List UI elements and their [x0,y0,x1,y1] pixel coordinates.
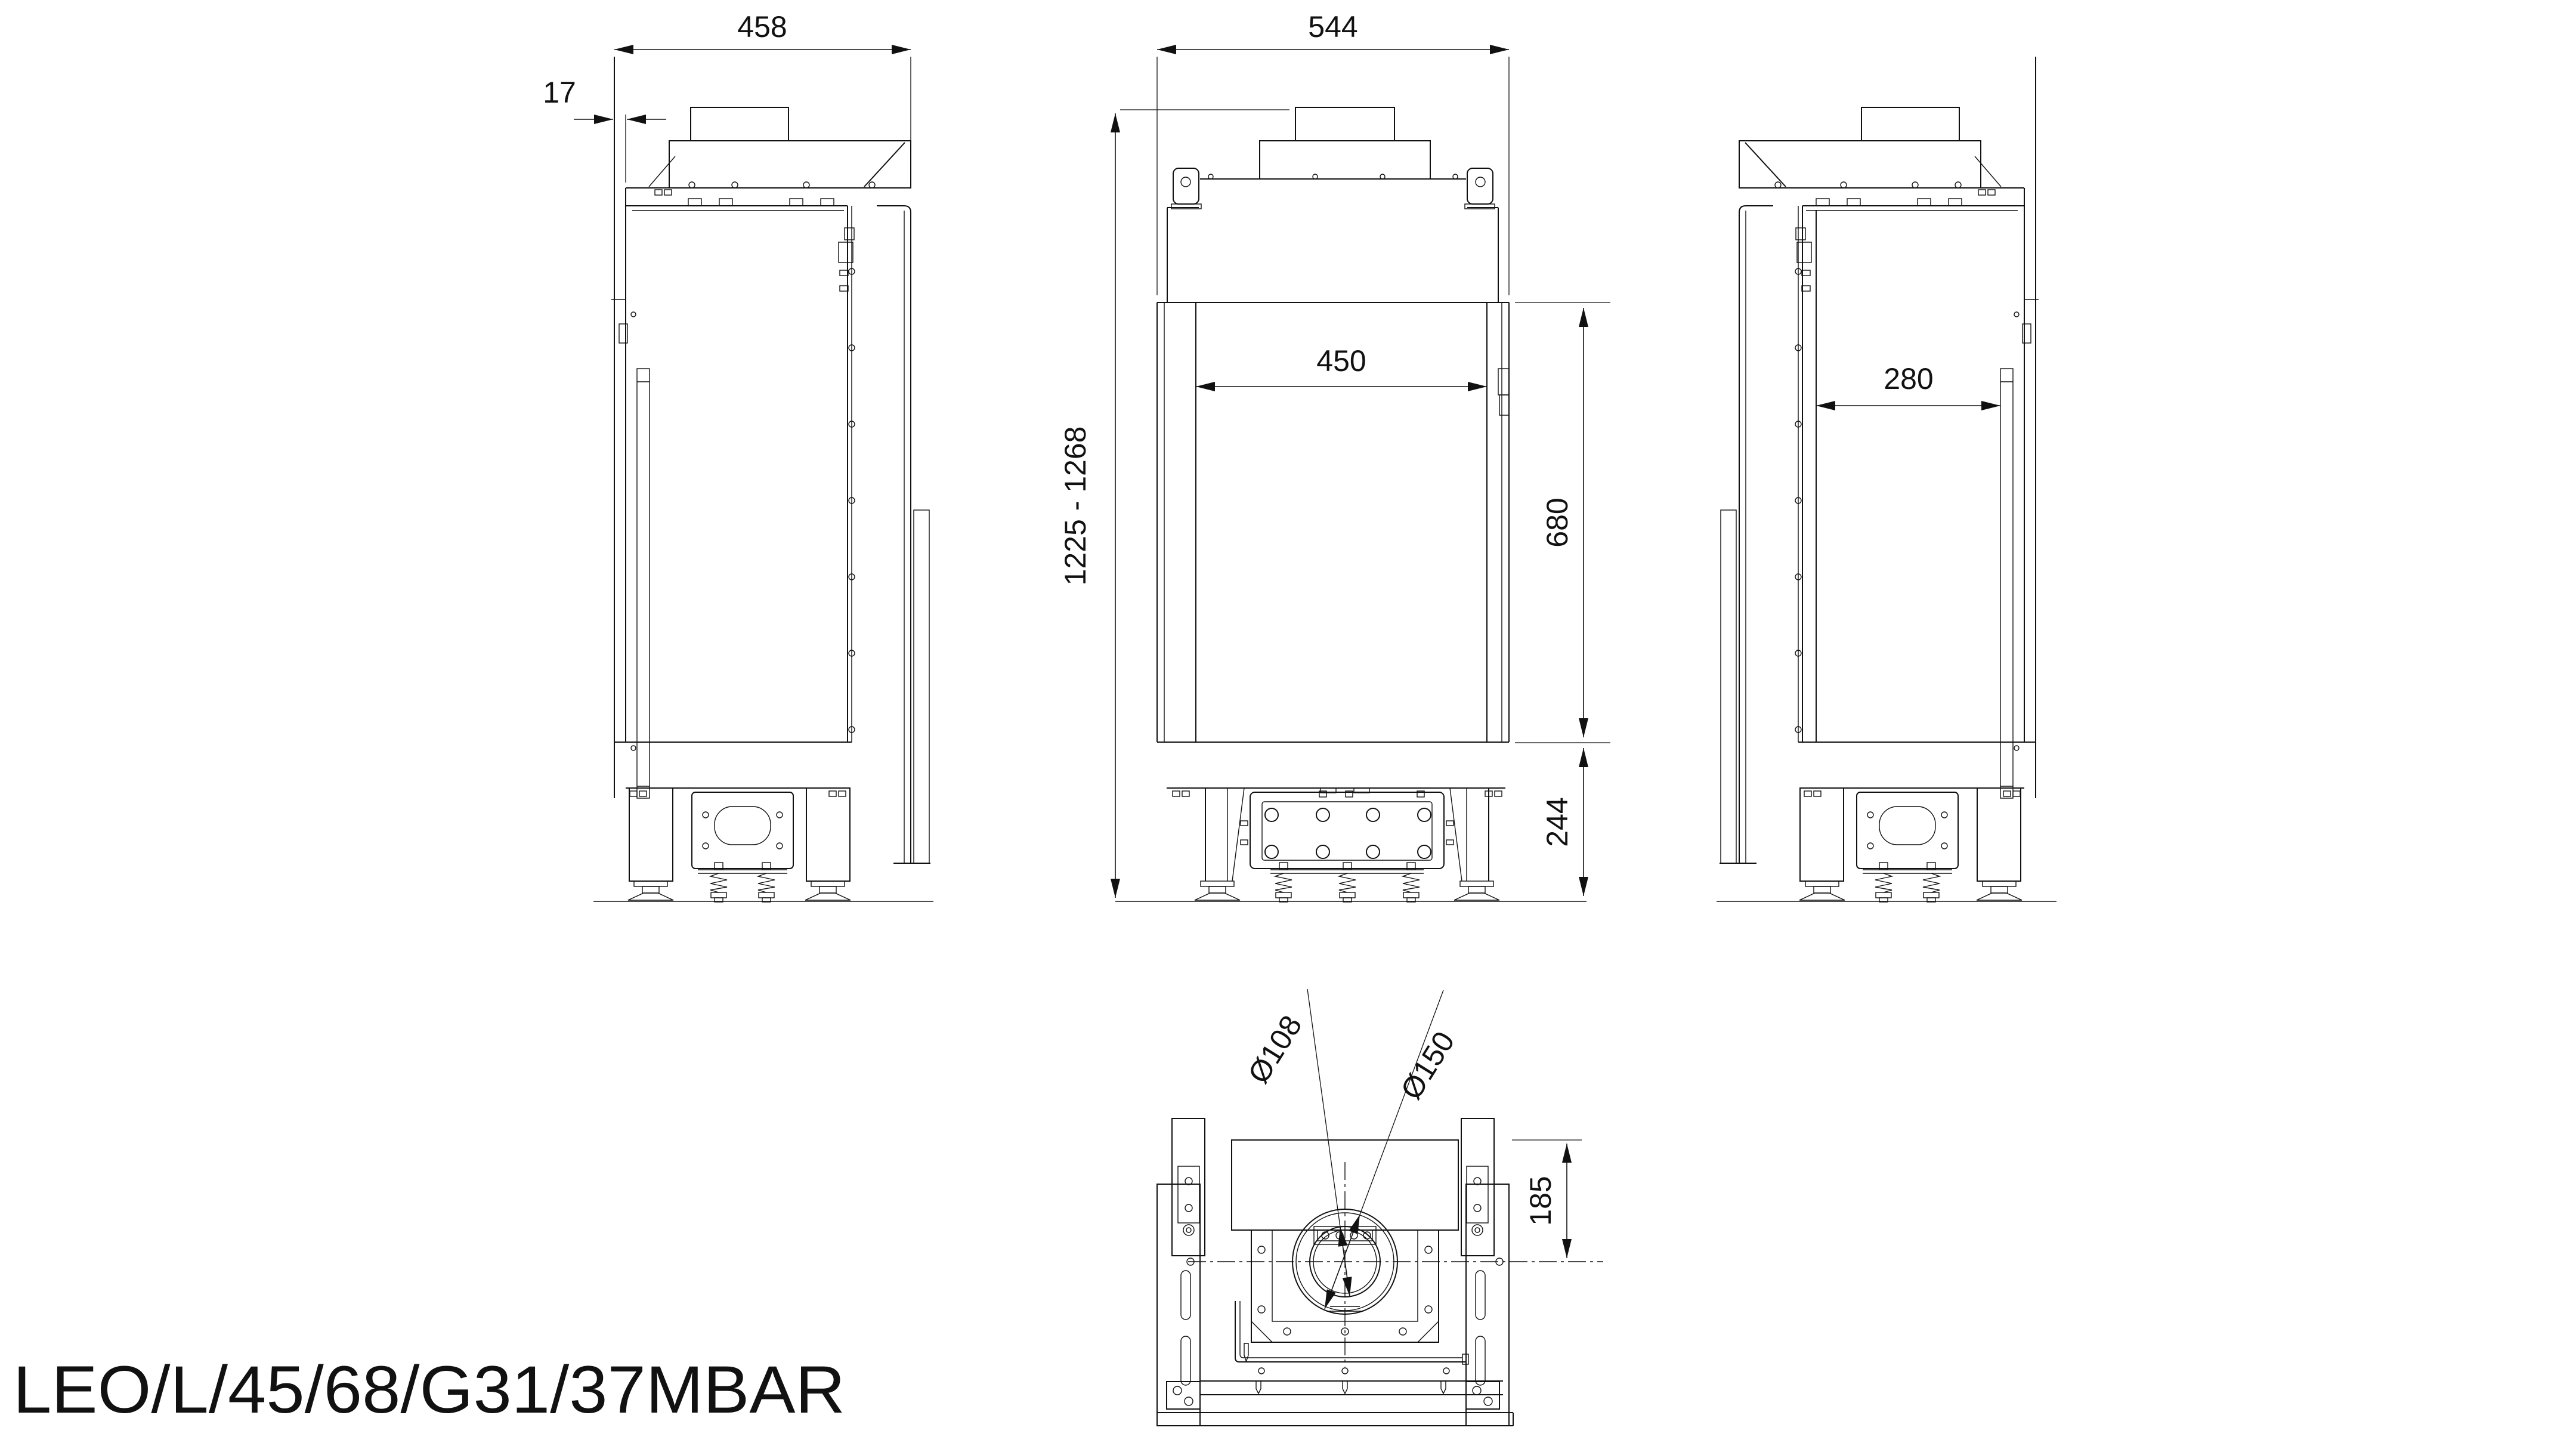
plan-side-panels [1157,1184,1509,1426]
dim-depth: 458 [737,10,787,44]
dim-glass-offset: 17 [543,76,576,109]
plan-front-strips [1157,1381,1513,1426]
plan-glass-channel [1235,1301,1468,1374]
model-title: LEO/L/45/68/G31/37MBAR [13,1352,845,1427]
dim-side-glass: 280 [1884,362,1933,396]
mount-bracket-right [1465,168,1495,209]
mount-bracket-left [1171,168,1201,209]
dim-flue-offset: 185 [1524,1176,1557,1225]
front-view [1115,107,1587,902]
dim-flue-outer: Ø150 [1394,1025,1461,1105]
fascia-front [1157,208,1509,302]
dim-base-height: 244 [1541,797,1574,846]
dim-glass-width: 450 [1316,344,1366,378]
dimensions: 458 17 1225 - 1268 544 450 680 244 280 1… [543,10,2000,1309]
plan-rear-rails [1172,1119,1494,1256]
dim-glass-height: 680 [1541,498,1574,547]
dim-flue-inner: Ø108 [1241,1009,1308,1089]
side-view-left [593,57,933,902]
dim-width: 544 [1308,10,1357,44]
dim-overall-height: 1225 - 1268 [1059,427,1092,586]
control-unit-holes [1265,808,1431,858]
flue-collar-front [1260,107,1430,179]
gas-control-unit-front [1241,791,1454,902]
base-front [1157,742,1509,900]
technical-drawing-gas-fireplace: 458 17 1225 - 1268 544 450 680 244 280 1… [0,0,2576,1449]
hood-top-front [1200,174,1466,179]
side-view-right [1717,57,2057,902]
plan-view [1157,1119,1603,1426]
